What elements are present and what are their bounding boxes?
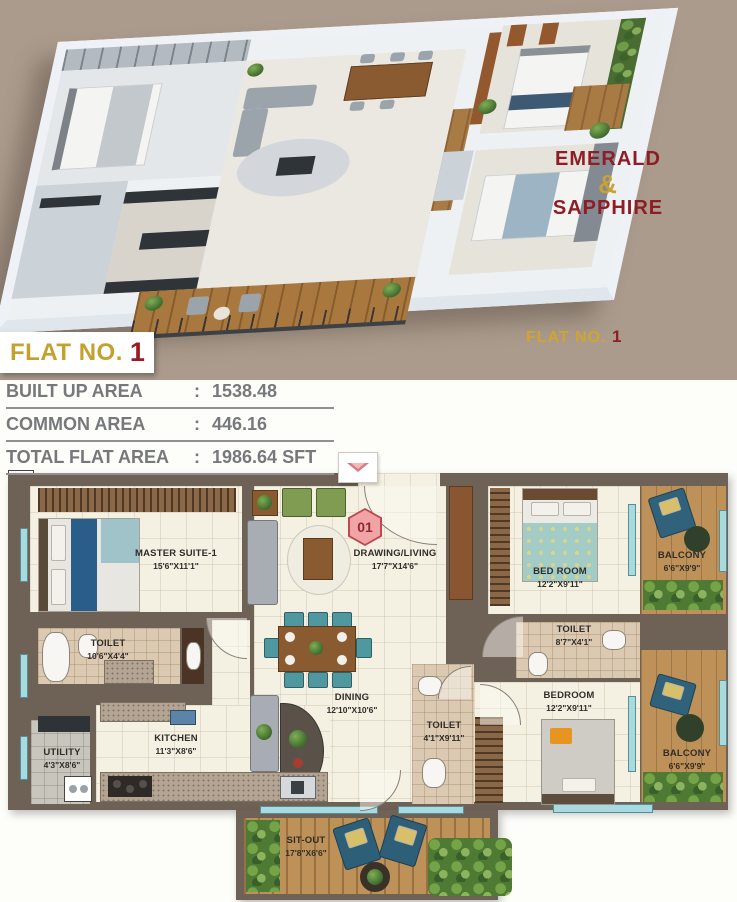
flower-icon [289,730,307,748]
floor-plan: 01 [8,470,730,902]
area-value: 1538.48 [212,381,334,402]
brochure-page: EMERALD & SAPPHIRE FLAT NO. 1 FLAT NO. 1… [0,0,737,902]
shower-tray [186,642,201,670]
balcony-table [676,714,704,742]
bed-headboard [542,794,614,804]
flat-corner-number: 1 [612,327,622,346]
dining-chair [332,672,352,688]
area-table: BUILT UP AREA : 1538.48 COMMON AREA : 44… [6,376,334,475]
label-master-suite: MASTER SUITE-1 15'6"X11'1" [135,548,217,572]
dining-chair [308,672,328,688]
flower-icon [256,724,272,740]
entrance-arrow-box [338,452,378,483]
plate [285,655,295,665]
sitout-planter-left [246,820,280,892]
label-bedroom-top: BED ROOM 12'2"X9'11" [533,566,587,590]
tv-unit [449,486,473,600]
fridge [280,776,316,799]
pillow [51,569,66,605]
area-row-total: TOTAL FLAT AREA : 1986.64 SFT [6,442,334,475]
area-label: COMMON AREA [6,414,194,435]
master-wardrobe [38,488,236,512]
label-drawing-living: DRAWING/LIVING 17'7"X14'6" [353,548,436,572]
plant-icon [257,495,272,510]
label-balcony-bottom: BALCONY 6'6"X9'9" [663,748,711,772]
pillow [563,502,591,516]
living-sofa [247,520,278,605]
dining-sofa [250,695,279,772]
bed-runner [71,519,97,611]
utility-appliances [38,716,90,732]
dining-table [278,626,356,672]
burner [126,785,134,793]
label-dining: DINING 12'10"X10'6" [327,692,378,716]
knob [69,785,77,793]
shower-cubicle [182,628,204,684]
plate [337,655,347,665]
iso-deck-chair [238,293,262,312]
kitchen-sink [170,710,196,725]
brand-ampersand: & [545,171,671,197]
entrance-arrow-icon [347,463,369,472]
cushion [658,497,681,516]
label-toilet-top: TOILET 8'7"X4'1" [556,624,593,648]
pillow [562,778,596,792]
balcony-bottom-planter [643,772,723,802]
orange-cushion [550,728,572,744]
vanity-counter [104,660,154,684]
sitout-greenery-right [428,838,512,896]
label-balcony-top: BALCONY 6'6"X9'9" [658,550,706,574]
window [628,504,636,576]
window [20,528,28,582]
utility-sink-unit [64,776,92,802]
brand-text: EMERALD & SAPPHIRE [545,148,671,220]
plant-icon [143,295,164,311]
window [20,736,28,780]
iso-dining-table [343,62,433,101]
area-value: 1986.64 SFT [212,447,334,468]
plate [337,632,347,642]
burner [139,780,147,788]
coffee-table [303,538,333,580]
window [719,510,727,572]
bedroom-bottom-wardrobe [475,717,503,803]
flower-icon [293,758,303,768]
iso-master-blanket [96,85,154,168]
bed-headboard [523,489,597,500]
window [628,696,636,772]
area-row-builtup: BUILT UP AREA : 1538.48 [6,376,334,409]
bedroom-top-wardrobe [490,488,510,606]
area-colon: : [194,381,212,402]
flat-title-number: 1 [130,337,145,368]
plate [285,632,295,642]
centerpiece-plant [309,641,323,655]
label-utility: UTILITY 4'3"X8'6" [43,747,80,771]
label-toilet-master: TOILET 10'6"X4'4" [87,638,128,662]
label-toilet-mid: TOILET 4'1"X9'11" [424,720,465,744]
dining-chair [284,672,304,688]
fridge-door [291,781,304,794]
plant-icon [381,282,402,298]
iso-master-bed [52,83,163,170]
window [553,804,653,813]
balcony-top-planter [643,580,723,610]
area-colon: : [194,447,212,468]
brand-line2: SAPPHIRE [545,197,671,220]
knob [80,785,88,793]
window [20,654,28,698]
armchair [282,488,312,517]
stove [108,776,152,797]
area-label: BUILT UP AREA [6,381,194,402]
cushion [662,681,685,700]
burner [113,780,121,788]
iso-sofa [243,84,318,109]
area-row-common: COMMON AREA : 446.16 [6,409,334,442]
brand-line1: EMERALD [545,148,671,171]
flat-number-corner: FLAT NO. 1 [526,327,623,347]
flat-title-box: FLAT NO. 1 [0,332,154,373]
balcony-table [684,526,710,552]
side-table [252,490,278,516]
window [398,806,464,814]
toilet-sink [602,630,626,650]
iso-deck-chair [186,296,210,315]
master-bed [38,518,140,612]
label-sitout: SIT-OUT 17'8"X6'6" [285,835,326,859]
bathtub [42,632,70,682]
toilet-seat [528,652,548,676]
area-colon: : [194,414,212,435]
bed-blanket [101,519,139,563]
pillow [51,525,66,561]
toilet-seat [422,758,446,788]
label-bedroom-bottom: BEDROOM 12'2"X9'11" [543,690,594,714]
window [719,680,727,746]
plant-icon [367,869,383,885]
cushion [394,825,418,846]
bedroom-bottom-bed [541,719,615,805]
bed-headboard [39,519,48,611]
label-kitchen: KITCHEN 11'3"X8'6" [154,733,198,757]
cushion [344,827,368,848]
flat-number-hexagon-text: 01 [350,510,380,544]
flat-corner-label: FLAT NO. [526,329,607,346]
flat-title-label: FLAT NO. [10,339,123,367]
dining-chair [356,638,372,658]
pillow [531,502,559,516]
sitout-table [360,862,390,892]
armchair [316,488,346,517]
iso-coffee-table [276,156,316,176]
area-label: TOTAL FLAT AREA [6,447,194,468]
area-value: 446.16 [212,414,334,435]
